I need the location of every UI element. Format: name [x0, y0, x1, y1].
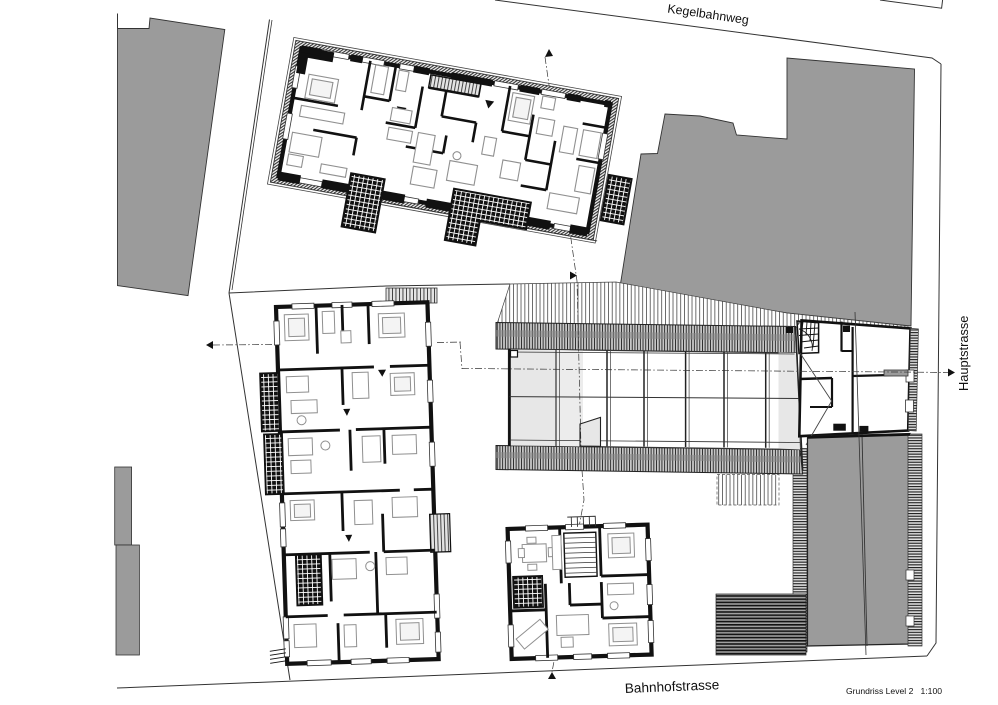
svg-text:Grundriss Level 2 1:100: Grundriss Level 2 1:100	[846, 686, 942, 696]
svg-text:Hauptstrasse: Hauptstrasse	[956, 316, 971, 391]
